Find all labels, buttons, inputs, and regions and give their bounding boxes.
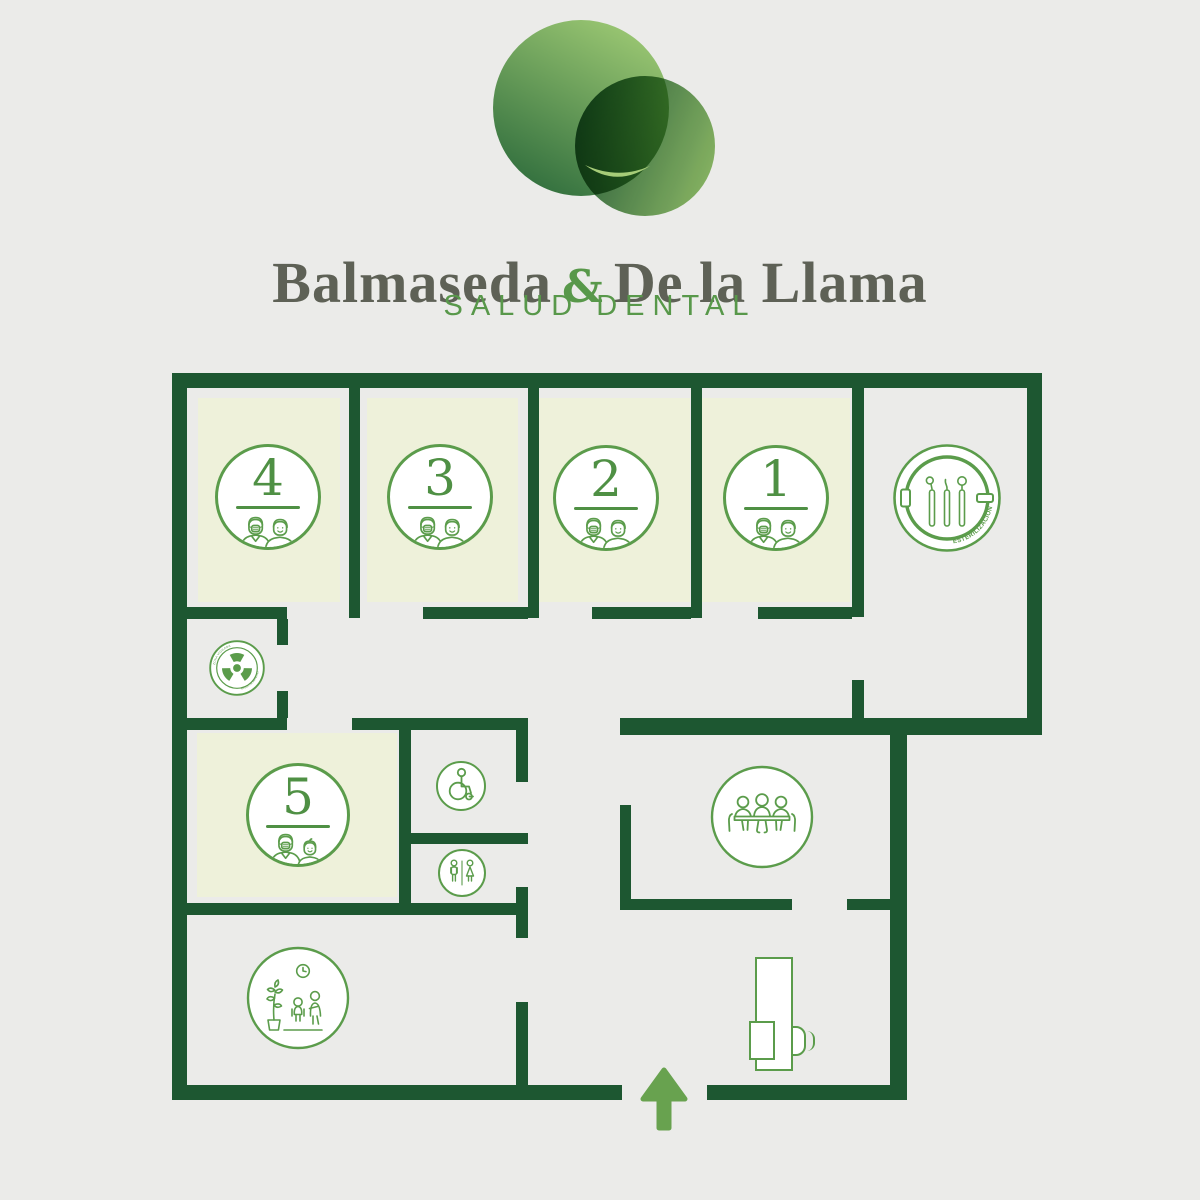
reception-desk-return: [749, 1021, 775, 1060]
dentist-patient-icon: [408, 516, 472, 549]
wall-segment: [620, 718, 1042, 735]
room-4-number: 4: [218, 453, 318, 503]
floor-plan: 4 3 2 1 5: [0, 0, 1200, 1200]
wall-segment: [187, 718, 287, 730]
wall-segment: [277, 619, 288, 645]
wall-segment: [620, 899, 792, 910]
wall-segment: [852, 680, 864, 718]
radiology-sign: ZONA VIGILADA RIESGO DE IRRADIACIÓN: [208, 639, 266, 697]
wall-segment: [691, 386, 702, 618]
wall-segment: [423, 607, 528, 619]
room-1-number: 1: [726, 454, 826, 504]
wall-segment: [352, 718, 527, 730]
dentist-child-patient-icon: [266, 833, 330, 866]
wall-segment: [516, 718, 528, 782]
room-2-number: 2: [556, 454, 656, 504]
sterilization-sign: ESTERILIZACIÓN: [892, 443, 1002, 553]
meeting-room-sign: [709, 764, 815, 870]
room-5-number: 5: [249, 772, 347, 822]
reception-chair: [791, 1026, 806, 1056]
wall-segment: [187, 903, 528, 915]
wall-segment: [172, 373, 187, 1100]
dentist-patient-icon: [236, 516, 300, 549]
wall-segment: [349, 386, 360, 618]
wall-segment: [528, 386, 539, 618]
wall-segment: [890, 735, 907, 1100]
wall-segment: [172, 373, 1042, 388]
wall-segment: [1027, 373, 1042, 735]
clock-icon: [297, 965, 310, 978]
room-3-number: 3: [390, 453, 490, 503]
room-1-sign: 1: [723, 445, 829, 551]
wall-segment: [847, 899, 890, 910]
wall-segment: [516, 1002, 528, 1085]
wall-segment: [172, 1085, 622, 1100]
wall-segment: [187, 607, 287, 619]
dentist-patient-icon: [744, 517, 808, 550]
wall-segment: [852, 386, 864, 617]
wall-segment: [620, 805, 631, 910]
wall-segment: [758, 607, 852, 619]
room-3-sign: 3: [387, 444, 493, 550]
dentist-patient-icon: [574, 517, 638, 550]
entrance-arrow-icon: [634, 1062, 694, 1142]
wall-segment: [707, 1085, 907, 1100]
room-5-sign: 5: [246, 763, 350, 867]
accessible-toilet-sign: [435, 760, 487, 812]
toilets-sign: [437, 848, 487, 898]
waiting-area-sign: [246, 946, 350, 1050]
room-2-sign: 2: [553, 445, 659, 551]
wall-segment: [277, 691, 288, 718]
wall-segment: [399, 718, 411, 915]
reception-chair-back: [807, 1031, 815, 1051]
wall-segment: [411, 833, 528, 844]
wall-segment: [592, 607, 691, 619]
room-4-sign: 4: [215, 444, 321, 550]
